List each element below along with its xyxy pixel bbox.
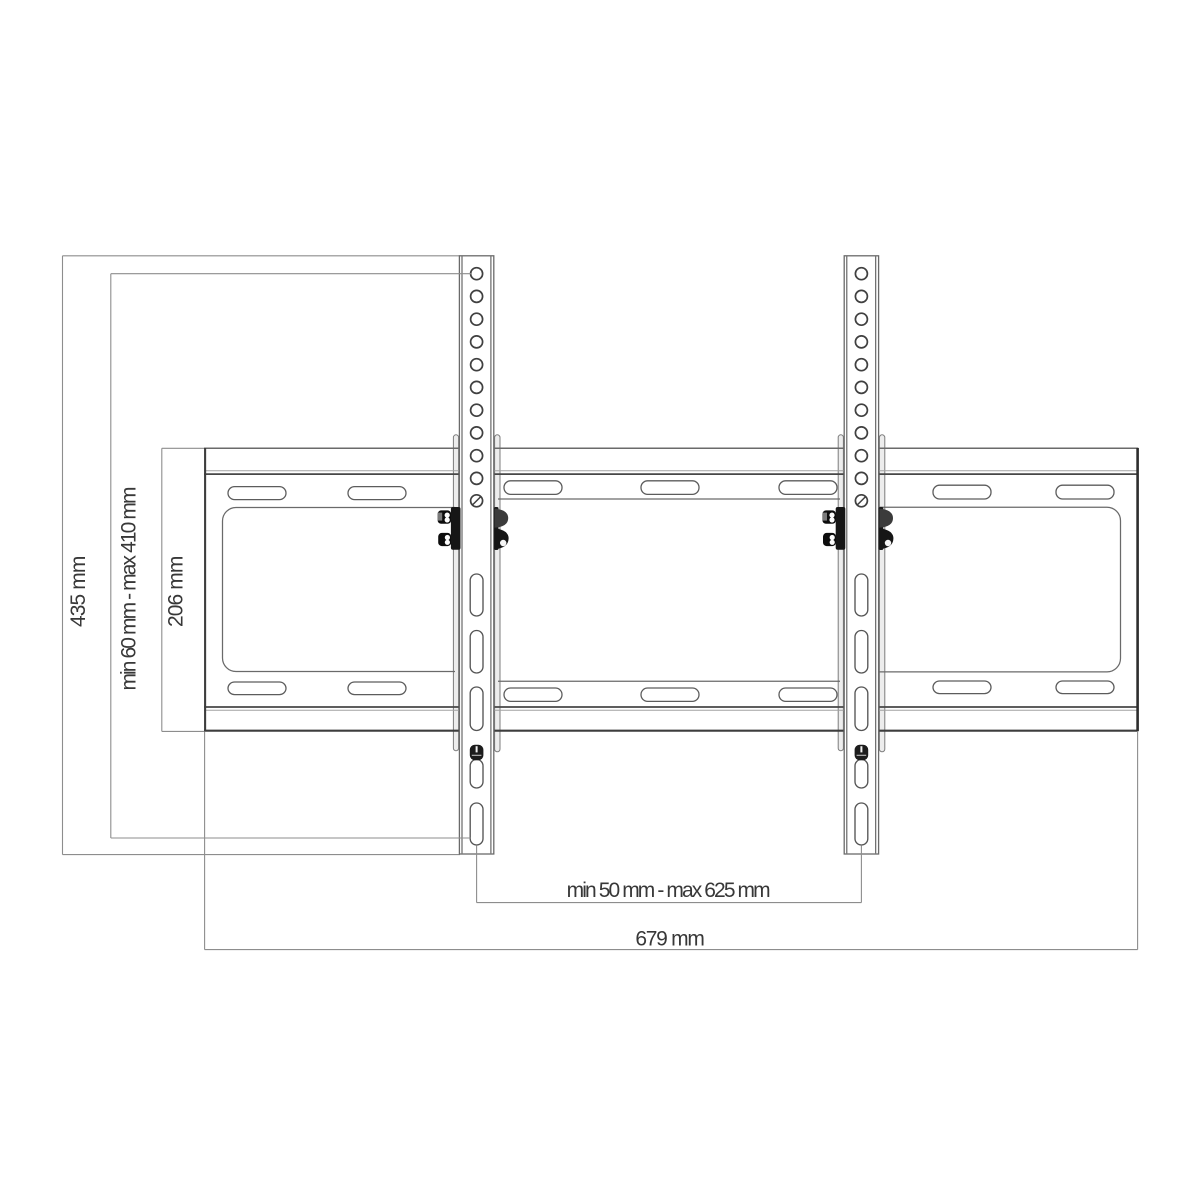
svg-text:min 50 mm - max 625 mm: min 50 mm - max 625 mm: [567, 879, 770, 902]
svg-text:min 60 mm - max 410 mm: min 60 mm - max 410 mm: [118, 487, 141, 690]
svg-text:679 mm: 679 mm: [635, 927, 704, 950]
svg-text:435 mm: 435 mm: [67, 556, 90, 627]
svg-text:206 mm: 206 mm: [165, 556, 188, 627]
